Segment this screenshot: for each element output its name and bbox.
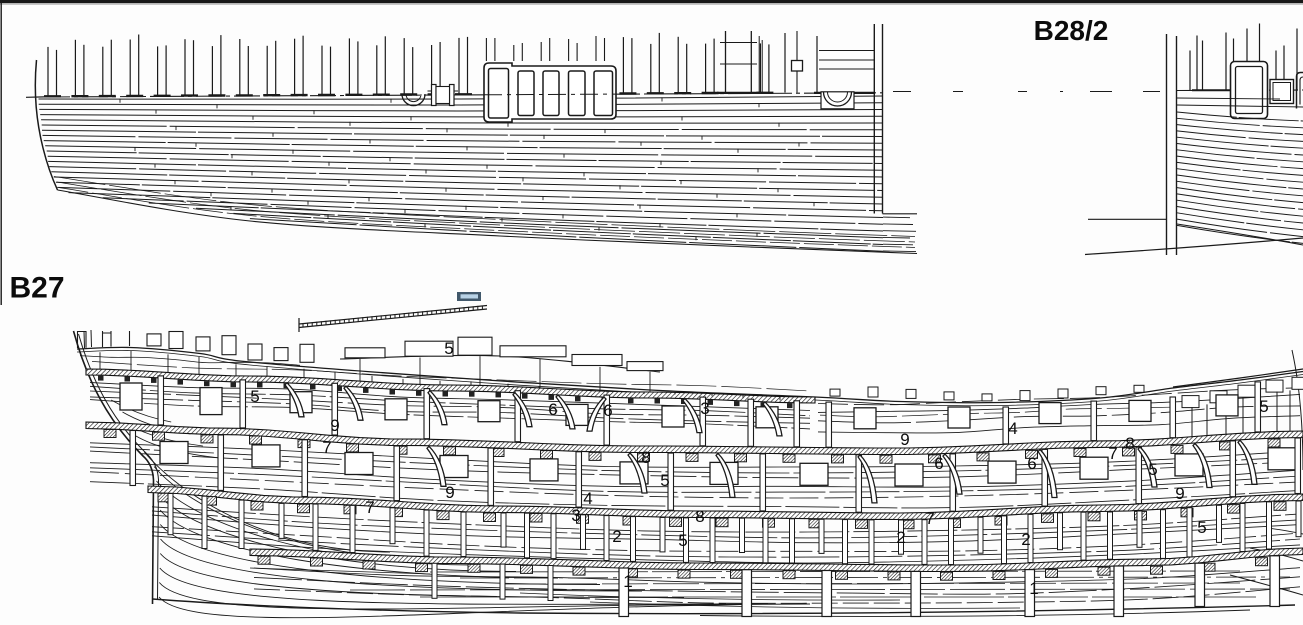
- svg-text:4: 4: [583, 489, 592, 508]
- svg-text:2: 2: [612, 527, 621, 546]
- svg-text:5: 5: [660, 471, 669, 490]
- svg-text:6: 6: [1027, 454, 1036, 473]
- svg-text:5: 5: [1148, 460, 1157, 479]
- svg-text:1: 1: [1029, 579, 1038, 598]
- svg-text:9: 9: [445, 483, 454, 502]
- svg-text:5: 5: [1197, 518, 1206, 537]
- svg-text:4: 4: [1008, 419, 1017, 438]
- svg-text:B28/2: B28/2: [1034, 15, 1109, 46]
- svg-text:7: 7: [925, 509, 934, 528]
- svg-text:8: 8: [1125, 434, 1134, 453]
- svg-text:5: 5: [1259, 397, 1268, 416]
- svg-text:6: 6: [603, 401, 612, 420]
- svg-text:5: 5: [678, 531, 687, 550]
- svg-text:9: 9: [1175, 484, 1184, 503]
- svg-text:9: 9: [900, 430, 909, 449]
- svg-text:7: 7: [322, 438, 331, 457]
- svg-text:8: 8: [641, 448, 650, 467]
- svg-text:5: 5: [250, 387, 259, 406]
- svg-text:2: 2: [896, 528, 905, 547]
- svg-text:3: 3: [571, 506, 580, 525]
- svg-text:6: 6: [934, 454, 943, 473]
- svg-text:7: 7: [365, 498, 374, 517]
- svg-text:9: 9: [330, 416, 339, 435]
- svg-text:8: 8: [695, 507, 704, 526]
- svg-text:6: 6: [548, 400, 557, 419]
- svg-text:B27: B27: [9, 272, 64, 305]
- svg-text:3: 3: [700, 399, 709, 418]
- svg-text:5: 5: [444, 339, 453, 358]
- svg-text:1: 1: [623, 572, 632, 591]
- svg-text:2: 2: [1021, 530, 1030, 549]
- svg-text:7: 7: [1108, 444, 1117, 463]
